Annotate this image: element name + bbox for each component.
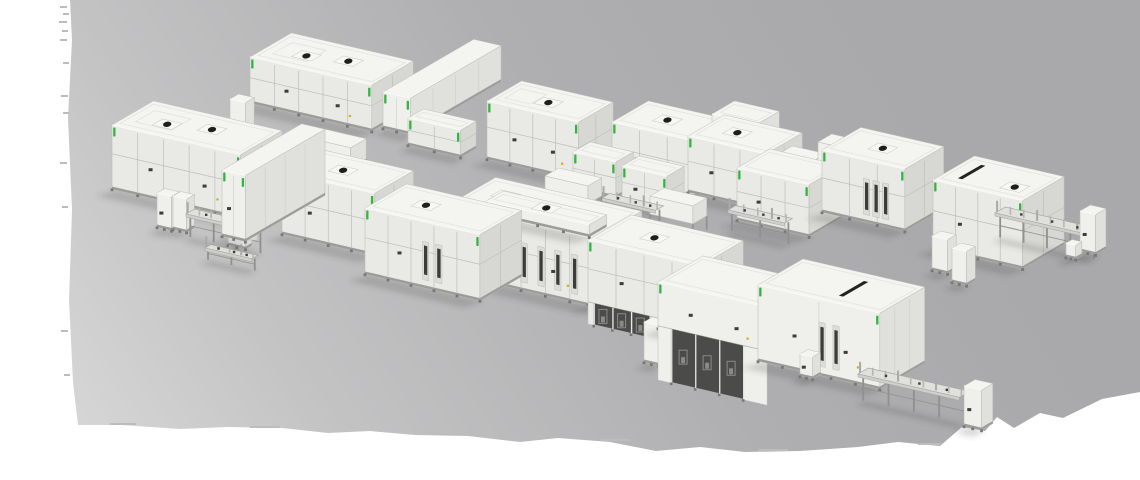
floor-edge-artifact	[60, 162, 67, 164]
floor-edge-artifact	[110, 423, 136, 425]
production-line-render	[0, 0, 1140, 480]
status-led-green	[368, 88, 370, 97]
status-led-green	[574, 155, 576, 164]
floor-edge-artifact	[63, 13, 69, 15]
status-led-green	[823, 153, 825, 162]
status-led-green	[251, 60, 253, 69]
status-led-green	[613, 125, 615, 134]
floor-edge-artifact	[250, 426, 280, 428]
status-led-green	[223, 173, 225, 182]
status-led-green	[113, 128, 115, 137]
floor-edge-artifact	[63, 62, 69, 64]
status-led-green	[575, 125, 577, 134]
status-led-green	[901, 172, 903, 181]
status-led-green	[366, 211, 368, 220]
status-led-green	[623, 169, 625, 178]
floor-edge-artifact	[600, 439, 630, 441]
status-led-green	[612, 164, 614, 173]
floor-edge-artifact	[61, 330, 68, 332]
floor-edge-artifact	[60, 39, 67, 41]
floor-edge-artifact	[59, 21, 67, 23]
status-led-green	[738, 171, 740, 180]
status-led-green	[242, 178, 244, 187]
status-led-green	[934, 183, 936, 192]
status-led-green	[407, 101, 409, 110]
status-led-green	[488, 104, 490, 113]
page: { "scene": { "viewBox": "0 0 1140 480", …	[0, 0, 1140, 480]
scene-canvas	[0, 0, 1140, 480]
status-led-green	[689, 139, 691, 148]
floor-edge-artifact	[63, 112, 69, 114]
status-led-green	[457, 133, 459, 142]
status-led-green	[384, 95, 386, 104]
floor-edge-artifact	[62, 30, 68, 32]
floor-edge-artifact	[918, 443, 942, 445]
status-led-green	[409, 121, 411, 130]
status-led-green	[759, 288, 761, 297]
status-led-green	[876, 316, 878, 325]
floor-edge-artifact	[61, 95, 68, 97]
floor-edge-artifact	[430, 433, 464, 435]
floor-edge-artifact	[62, 206, 68, 208]
status-led-green	[659, 285, 661, 294]
status-led-green	[663, 179, 665, 188]
floor-edge-artifact	[64, 374, 70, 376]
floor-edge-artifact	[758, 449, 788, 451]
status-led-green	[476, 237, 478, 246]
status-led-green	[805, 187, 807, 196]
status-led-green	[589, 243, 591, 252]
floor-edge-artifact	[60, 6, 67, 8]
